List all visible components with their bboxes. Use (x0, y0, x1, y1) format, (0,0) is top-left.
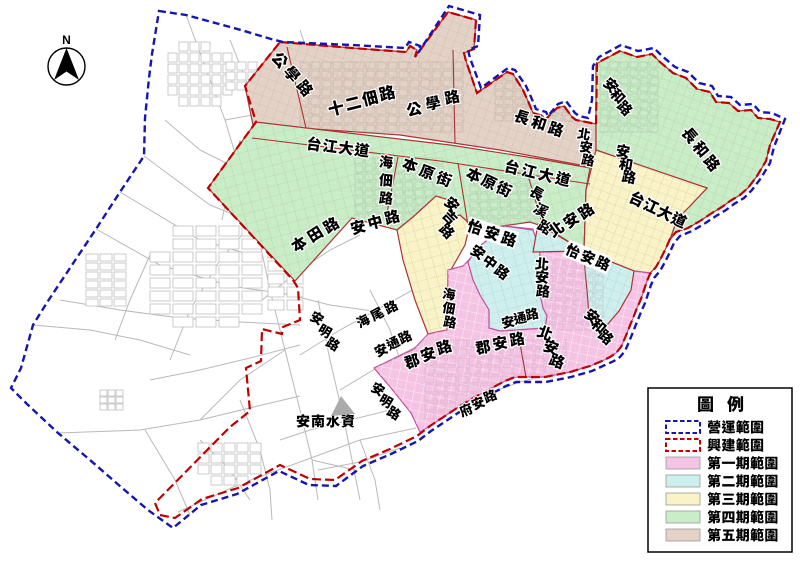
svg-text:N: N (62, 33, 71, 47)
